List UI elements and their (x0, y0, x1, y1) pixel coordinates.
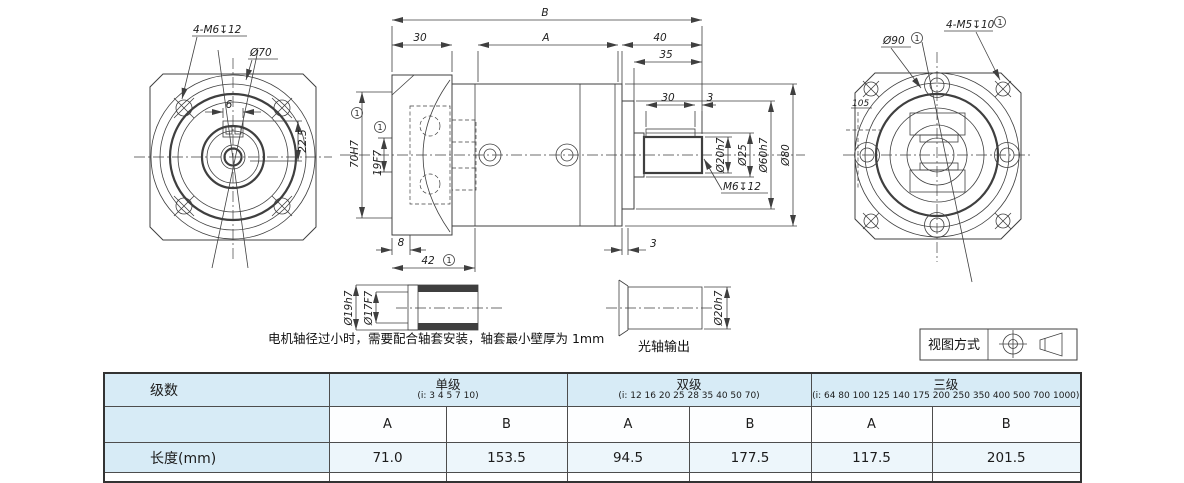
technical-drawing: 6 22.5 4-M6↧12 Ø70 (0, 0, 1184, 372)
dim-3-gap: 3 (650, 238, 657, 250)
end-tap-label: M6↧12 (723, 181, 761, 193)
projection-cone-icon (1040, 333, 1062, 356)
dim-30-flange: 30 (413, 32, 427, 44)
plain-shaft-detail: Ø20h7 (606, 280, 731, 336)
front-thread-label: 4-M6↧12 (193, 24, 242, 36)
front-view: 6 22.5 4-M6↧12 Ø70 (134, 24, 332, 268)
sleeve-note: 电机轴径过小时，需要配合轴套安装，轴套最小壁厚为 1mm (268, 331, 604, 346)
dimension-table-wrap: 级数 单级 (i: 3 4 5 7 10) 双级 (i: 12 16 20 25… (103, 372, 1082, 483)
dim-70H7: 70H7 (349, 140, 361, 168)
col-b-header: B (446, 407, 567, 443)
group-header-triple: 三级 (i: 64 80 100 125 140 175 200 250 350… (811, 373, 1081, 407)
dim-19F7: 19F7 (372, 150, 384, 176)
group-ratios: (i: 3 4 5 7 10) (330, 392, 567, 402)
projection-target-icon (999, 330, 1027, 358)
dim-A: A (541, 32, 549, 44)
key-width-dim: 6 (226, 99, 233, 111)
blank-cell (567, 473, 689, 483)
dim-8: 8 (398, 237, 405, 249)
projection-label: 视图方式 (928, 337, 980, 353)
dim-collar-dia: Ø25 (737, 144, 749, 167)
col-b-header: B (932, 407, 1081, 443)
length-value: 201.5 (932, 443, 1081, 473)
group-name: 双级 (568, 378, 811, 392)
length-value: 117.5 (811, 443, 932, 473)
front-pilot-dia-label: Ø70 (249, 47, 272, 59)
dim-body-dia: Ø80 (780, 144, 792, 167)
col-a-header: A (811, 407, 932, 443)
shaft-out-dia: Ø20h7 (713, 290, 725, 326)
group-header-double: 双级 (i: 12 16 20 25 28 35 40 50 70) (567, 373, 811, 407)
dim-35: 35 (659, 49, 673, 61)
blank-cell (104, 473, 329, 483)
length-row-header: 长度(mm) (104, 443, 329, 473)
group-name: 单级 (330, 378, 567, 392)
sleeve-outer-dia: Ø19h7 (343, 290, 355, 326)
rear-diag-dim: 105 (852, 99, 869, 109)
footnote-marker: 1 (446, 256, 451, 265)
stage-header: 级数 (104, 373, 329, 407)
footnote-marker: 1 (377, 123, 382, 132)
footnote-marker: 1 (914, 34, 919, 43)
blank-cell (446, 473, 567, 483)
sleeve-detail: Ø19h7 Ø17F7 (343, 285, 502, 330)
group-ratios: (i: 64 80 100 125 140 175 200 250 350 40… (812, 392, 1081, 402)
rear-thread-label: 4-M5↧10 (946, 19, 995, 31)
col-a-header: A (329, 407, 446, 443)
rear-view: Ø90 1 4-M5↧10 1 105 (843, 17, 1033, 283)
shaft-out-label: 光轴输出 (638, 339, 690, 355)
group-header-single: 单级 (i: 3 4 5 7 10) (329, 373, 567, 407)
dim-spigot-dia: Ø60h7 (758, 137, 770, 173)
blank-cell (689, 473, 811, 483)
group-name: 三级 (812, 378, 1081, 392)
sleeve-inner-dia: Ø17F7 (363, 291, 375, 327)
dim-3-end: 3 (707, 92, 714, 104)
length-value: 94.5 (567, 443, 689, 473)
dim-B: B (541, 7, 548, 19)
dim-30-key: 30 (661, 92, 675, 104)
length-value: 153.5 (446, 443, 567, 473)
group-ratios: (i: 12 16 20 25 28 35 40 50 70) (568, 392, 811, 402)
footnote-marker: 1 (997, 18, 1002, 27)
footnote-marker: 1 (354, 109, 359, 118)
dim-42: 42 (421, 255, 435, 267)
projection-method-box: 视图方式 (920, 329, 1077, 360)
col-b-header: B (689, 407, 811, 443)
dim-shaft-dia: Ø20h7 (715, 137, 727, 173)
blank-cell (329, 473, 446, 483)
dim-40: 40 (653, 32, 667, 44)
blank-cell (932, 473, 1081, 483)
blank-cell (811, 473, 932, 483)
dimension-table: 级数 单级 (i: 3 4 5 7 10) 双级 (i: 12 16 20 25… (103, 372, 1082, 483)
length-value: 71.0 (329, 443, 446, 473)
length-value: 177.5 (689, 443, 811, 473)
col-a-header: A (567, 407, 689, 443)
side-section-view: B 30 A 40 35 30 3 70H7 1 19F7 1 (340, 7, 805, 272)
rear-pilot-dia-label: Ø90 (882, 35, 905, 47)
blank-cell (104, 407, 329, 443)
keyway-dim: 22.5 (297, 129, 309, 153)
